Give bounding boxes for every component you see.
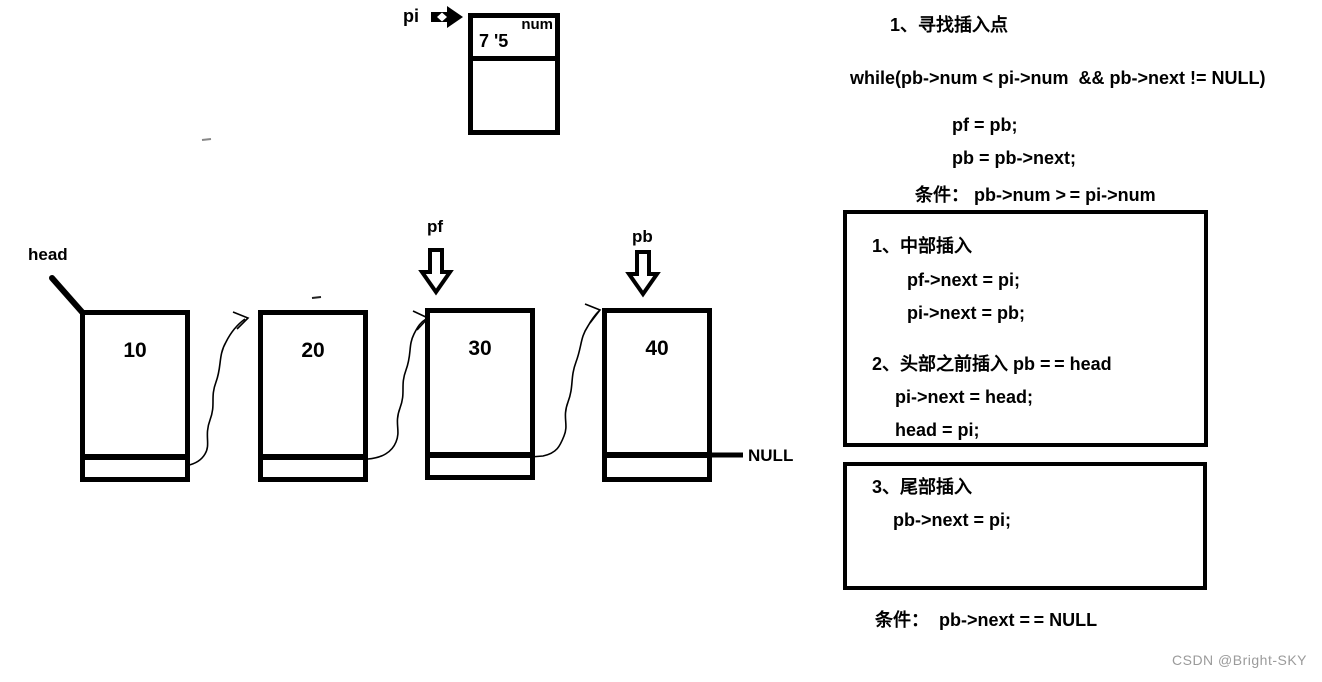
step1-title: 1、寻找插入点 xyxy=(890,15,1008,35)
exit-condition-1: 条件： pb->num > = pi->num xyxy=(915,185,1156,205)
node-value: 20 xyxy=(263,315,363,460)
pi-arrow-icon xyxy=(431,6,463,28)
head-pointer-line xyxy=(52,278,82,312)
case-tail-line1: pb->next = pi; xyxy=(893,510,1011,530)
linked-list-insertion-diagram: pi num 7 '5 head pf pb 10 20 30 40 NULL … xyxy=(0,0,1322,682)
list-node-2: 20 xyxy=(258,310,368,482)
num-field-label: num xyxy=(521,16,553,33)
node-value: 30 xyxy=(430,313,530,458)
case-middle-title: 1、中部插入 xyxy=(872,236,972,256)
pi-node-value: 7 '5 xyxy=(479,31,508,52)
null-label: NULL xyxy=(748,446,793,466)
tail-insert-box: 3、尾部插入 pb->next = pi; xyxy=(843,462,1207,590)
case-middle-line1: pf->next = pi; xyxy=(907,270,1020,290)
pf-label: pf xyxy=(427,217,443,237)
case-tail-title: 3、尾部插入 xyxy=(872,477,972,497)
case-head-line1: pi->next = head; xyxy=(895,387,1033,407)
watermark: CSDN @Bright-SKY xyxy=(1172,652,1307,668)
case-head-title: 2、头部之前插入 pb = = head xyxy=(872,354,1112,374)
stray-mark-1 xyxy=(202,139,211,140)
pb-arrow-icon xyxy=(629,252,657,294)
loop-body-line1: pf = pb; xyxy=(952,115,1018,135)
node-next-field xyxy=(85,460,185,501)
node-next-field xyxy=(430,458,530,499)
pi-node-box: num 7 '5 xyxy=(468,13,560,135)
node-next-field xyxy=(607,458,707,499)
list-node-4: 40 xyxy=(602,308,712,482)
case-head-line2: head = pi; xyxy=(895,420,980,440)
loop-body-line2: pb = pb->next; xyxy=(952,148,1076,168)
pi-node-value-section: num 7 '5 xyxy=(473,18,555,61)
pi-pointer-label: pi xyxy=(403,6,419,27)
exit-condition-2: 条件： pb->next = = NULL xyxy=(875,610,1097,630)
list-node-3: 30 xyxy=(425,308,535,480)
case-middle-line2: pi->next = pb; xyxy=(907,303,1025,323)
while-condition-line: while(pb->num < pi->num && pb->next != N… xyxy=(850,68,1266,88)
head-label: head xyxy=(28,245,68,265)
list-node-1: 10 xyxy=(80,310,190,482)
node-next-field xyxy=(263,460,363,501)
pf-arrow-icon xyxy=(422,250,450,292)
insert-cases-box: 1、中部插入 pf->next = pi; pi->next = pb; 2、头… xyxy=(843,210,1208,447)
node-value: 40 xyxy=(607,313,707,458)
stray-mark-2 xyxy=(312,297,321,298)
node-value: 10 xyxy=(85,315,185,460)
pb-label: pb xyxy=(632,227,653,247)
